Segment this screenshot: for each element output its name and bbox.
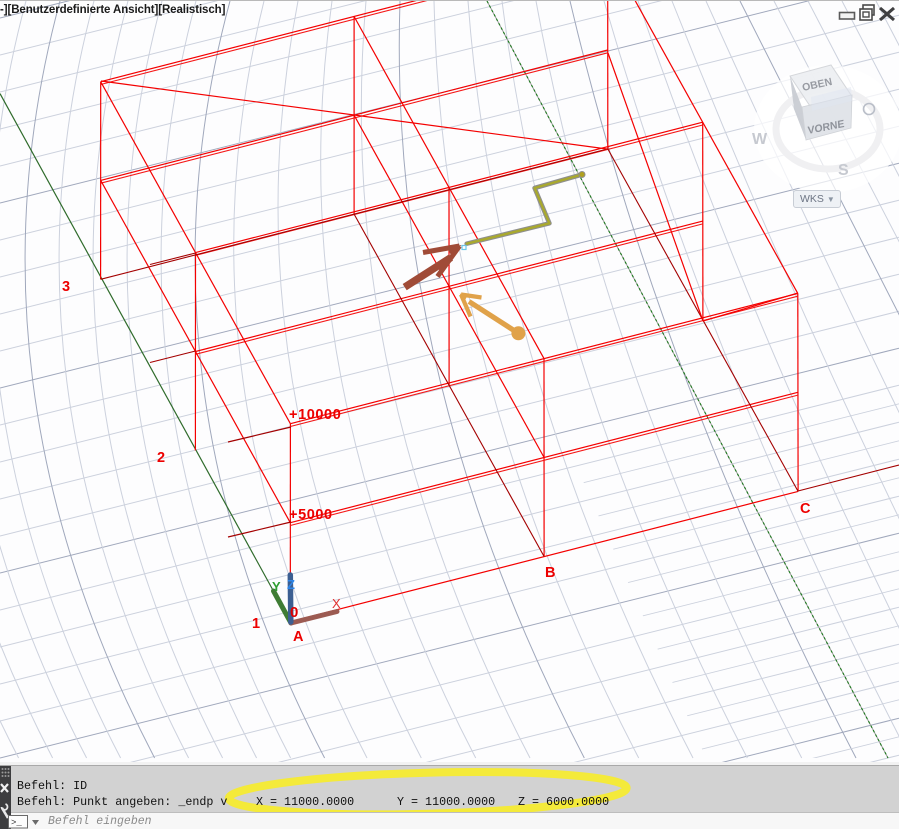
svg-text:W: W [752,131,768,148]
svg-text:B: B [545,565,555,581]
svg-text:C: C [800,501,811,517]
svg-text:+10000: +10000 [289,407,341,423]
svg-text:1: 1 [252,616,260,632]
svg-text:S: S [838,162,849,179]
svg-text:>_: >_ [11,818,22,828]
svg-text:Z: Z [287,577,295,592]
svg-text:+5000: +5000 [289,507,333,523]
svg-text:A: A [293,629,304,645]
svg-text:2: 2 [157,450,165,466]
svg-text:Y: Y [272,579,281,594]
svg-text:X: X [332,596,341,611]
svg-text:3: 3 [62,279,70,295]
svg-text:0: 0 [290,604,298,621]
